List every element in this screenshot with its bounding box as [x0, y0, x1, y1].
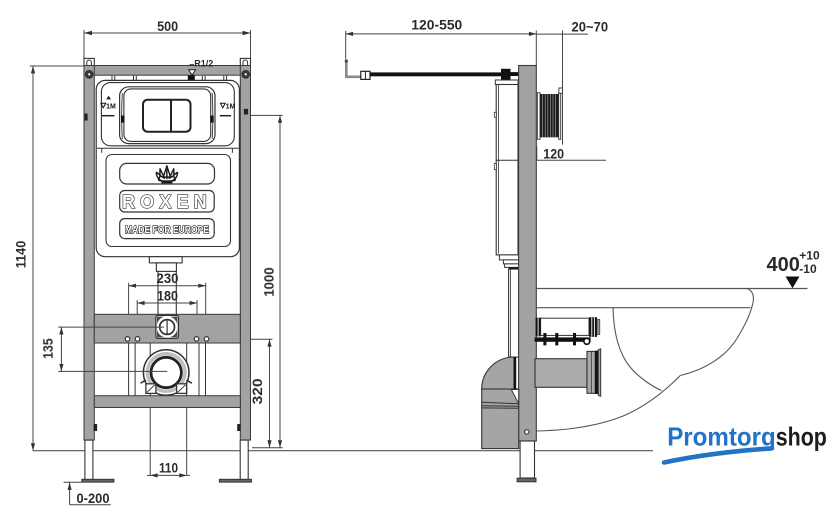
svg-text:+10: +10 [799, 249, 820, 263]
svg-text:120: 120 [543, 145, 564, 161]
svg-text:Promtorgshop: Promtorgshop [667, 422, 827, 452]
svg-text:20~70: 20~70 [572, 19, 609, 35]
svg-text:180: 180 [157, 288, 178, 304]
svg-text:ROXEN: ROXEN [122, 192, 212, 212]
svg-text:500: 500 [157, 18, 178, 34]
svg-text:400: 400 [767, 254, 800, 276]
svg-text:120-550: 120-550 [411, 17, 462, 33]
svg-text:1M: 1M [226, 104, 236, 111]
svg-text:0-200: 0-200 [77, 490, 110, 506]
svg-text:-10: -10 [799, 262, 817, 276]
svg-text:320: 320 [249, 378, 265, 404]
svg-text:230: 230 [157, 270, 179, 286]
svg-text:1000: 1000 [261, 267, 277, 297]
svg-text:1M: 1M [106, 104, 116, 111]
svg-text:1140: 1140 [13, 241, 29, 269]
svg-text:110: 110 [159, 460, 178, 476]
svg-text:135: 135 [40, 338, 56, 359]
svg-text:R1/2: R1/2 [194, 58, 213, 68]
svg-text:MADE FOR EUROPE: MADE FOR EUROPE [125, 225, 209, 236]
